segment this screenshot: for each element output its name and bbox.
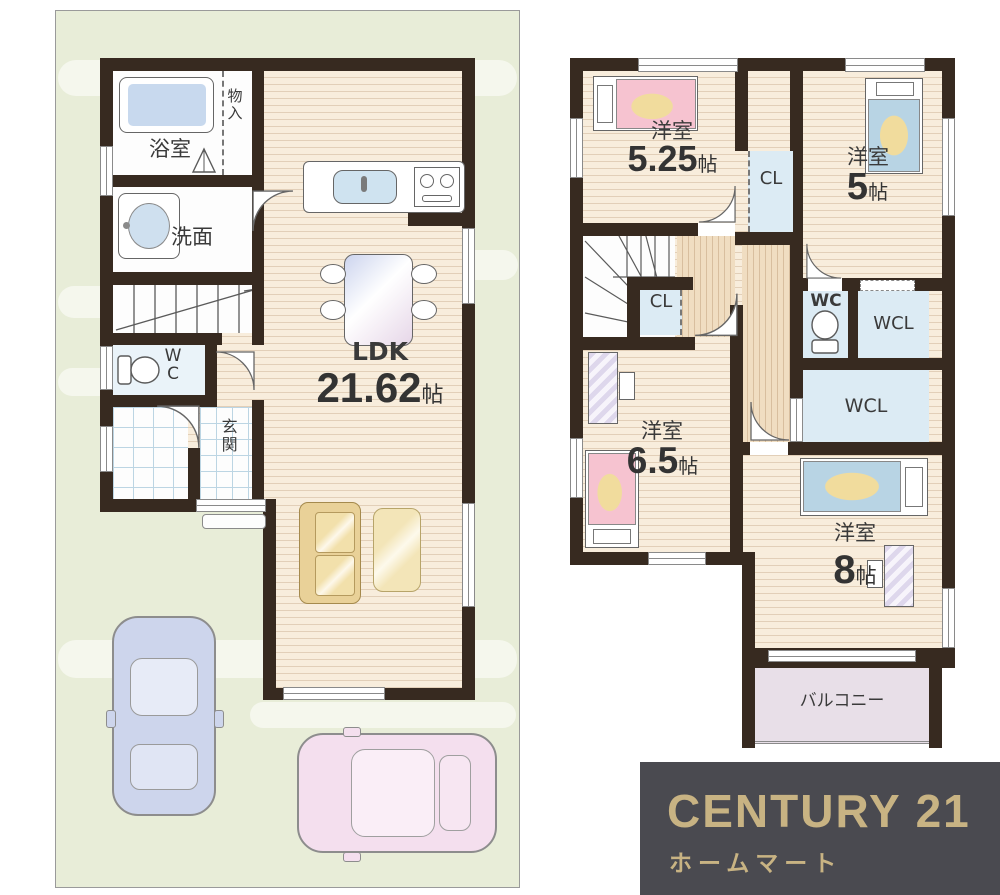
wall: [848, 291, 858, 358]
floorplan-page: 浴室 物入 洗面 WC 玄関 LDK 21.62帖: [0, 0, 1000, 895]
room-size-5: 5帖: [820, 166, 915, 209]
wall: [113, 175, 252, 187]
car-pink: [297, 733, 497, 853]
room-size-8: 8帖: [805, 548, 905, 593]
toilet-icon: [806, 310, 844, 356]
window: [100, 346, 113, 390]
room-label-storage: 物入: [226, 88, 243, 122]
dining-chair: [320, 300, 346, 320]
window: [638, 58, 738, 72]
door-opening: [808, 278, 842, 291]
paint-wash: [250, 702, 516, 728]
door-arc: [806, 243, 842, 279]
jo-unit: 帖: [422, 377, 444, 409]
dining-chair: [411, 300, 437, 320]
wall: [252, 400, 264, 499]
car-rear-window: [130, 744, 198, 790]
size-number: 6.5: [627, 440, 678, 482]
century21-logo-text: CENTURY 21: [667, 784, 971, 838]
room-label-ldk: LDK: [305, 338, 455, 366]
car-mirror: [343, 727, 361, 737]
burner-icon: [420, 174, 434, 188]
balcony-label: バルコニー: [755, 692, 929, 711]
window: [283, 687, 385, 700]
room-size-65: 6.5帖: [600, 440, 725, 482]
door-opening: [698, 223, 735, 236]
closet-cl-1: [748, 151, 793, 232]
ldk-size: 21.62帖: [290, 364, 470, 412]
car-blue: [112, 616, 216, 816]
sofa-cushion: [315, 555, 355, 596]
window: [942, 118, 955, 216]
bed-blanket: [803, 461, 901, 512]
window: [942, 588, 955, 648]
stairs-1f: [113, 285, 264, 333]
wall: [742, 662, 755, 748]
closet-label-wcl-2: WCL: [803, 396, 929, 417]
car-windshield: [130, 658, 198, 716]
balcony-slider: [768, 650, 916, 662]
bed-pillow: [597, 85, 613, 123]
closet-label-cl-2: CL: [648, 293, 674, 312]
door-arc: [156, 405, 200, 449]
car-mirror: [343, 852, 361, 862]
wall: [790, 358, 942, 370]
room-label-entrance: 玄関: [219, 418, 237, 454]
window: [648, 552, 706, 565]
grill-icon: [422, 195, 452, 202]
bathtub-water: [128, 84, 206, 126]
door-arc: [252, 189, 294, 233]
car-mirror: [106, 710, 116, 728]
room-label-wc-1f: WC: [162, 348, 184, 384]
wall: [742, 552, 755, 668]
dining-chair: [411, 264, 437, 284]
car-roof-window: [351, 749, 435, 837]
sofa: [299, 502, 361, 604]
stairs-treads: [113, 285, 264, 333]
door-arc: [215, 349, 255, 393]
room-label-wc-2f: WC: [804, 292, 848, 311]
company-name: ホームマート: [669, 844, 842, 878]
wall: [188, 448, 200, 499]
closet-label-cl-1: CL: [758, 170, 784, 189]
room-size-525: 5.25帖: [600, 138, 745, 180]
window: [100, 146, 113, 196]
wall: [113, 333, 222, 345]
wall: [735, 232, 803, 245]
bed: [800, 458, 928, 516]
wall: [583, 337, 695, 350]
wall: [113, 272, 264, 285]
ldk-size-number: 21.62: [316, 364, 421, 412]
entrance-door: [196, 499, 266, 512]
ottoman: [373, 508, 421, 592]
room-storage: [222, 71, 252, 175]
burner-icon: [440, 174, 454, 188]
room-label-bath: 浴室: [133, 138, 207, 161]
bed-pillow: [876, 82, 914, 96]
bed-pillow: [593, 529, 631, 544]
jo-unit: 帖: [698, 148, 718, 177]
size-number: 5: [847, 166, 868, 209]
room-label-washroom: 洗面: [150, 226, 234, 249]
desk-chair: [619, 372, 635, 400]
stove: [414, 167, 460, 207]
entrance-step: [202, 514, 266, 529]
faucet-icon: [361, 176, 367, 192]
door-arc: [698, 185, 736, 223]
dining-table: [344, 254, 413, 346]
wall: [730, 305, 743, 552]
window: [790, 398, 803, 442]
faucet-icon: [123, 222, 130, 229]
wall: [408, 213, 475, 226]
bed-pillow: [905, 467, 923, 507]
closet-opening: [860, 280, 915, 291]
toilet-icon: [116, 350, 162, 390]
jo-unit: 帖: [868, 176, 888, 205]
window: [845, 58, 925, 72]
window: [570, 118, 583, 178]
window: [100, 426, 113, 472]
window: [462, 503, 475, 607]
wall: [627, 277, 640, 337]
wall: [929, 662, 942, 748]
door-arc: [694, 292, 738, 337]
bathtub: [119, 77, 214, 133]
room-label-yoshitsu-8: 洋室: [815, 522, 895, 545]
car-mirror: [214, 710, 224, 728]
closet-label-wcl-1: WCL: [858, 314, 929, 334]
century21-logo-box: CENTURY 21 ホームマート: [640, 762, 1000, 895]
window: [462, 228, 475, 304]
desk: [588, 352, 618, 424]
door-opening: [750, 442, 788, 455]
dining-chair: [320, 264, 346, 284]
size-number: 5.25: [627, 138, 697, 180]
door-arc: [750, 400, 790, 442]
car-windshield: [439, 755, 471, 831]
jo-unit: 帖: [856, 560, 877, 590]
sofa-cushion: [315, 512, 355, 553]
window: [570, 438, 583, 498]
jo-unit: 帖: [678, 450, 698, 479]
size-number: 8: [833, 548, 855, 593]
